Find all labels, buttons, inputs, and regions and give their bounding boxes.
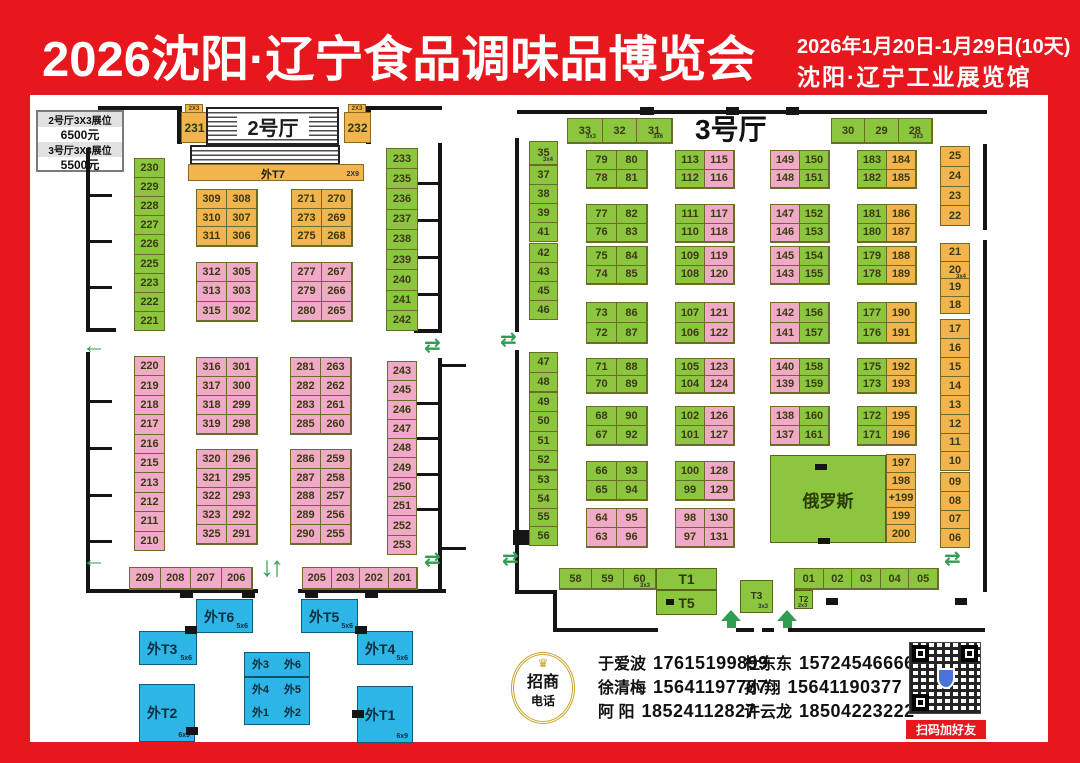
booth-54[interactable]: 54 bbox=[529, 489, 558, 509]
booth-286[interactable]: 286 bbox=[290, 449, 321, 469]
booth-116[interactable]: 116 bbox=[704, 169, 734, 189]
booth-90[interactable]: 90 bbox=[616, 406, 647, 426]
hall3-booth-block: 149150148151 bbox=[770, 150, 830, 189]
booth-200[interactable]: 200 bbox=[886, 524, 916, 543]
booth-262[interactable]: 262 bbox=[320, 376, 351, 396]
booth-russia[interactable]: 俄罗斯 bbox=[770, 455, 886, 543]
booth-256[interactable]: 256 bbox=[320, 505, 351, 525]
booth-122[interactable]: 122 bbox=[704, 322, 734, 343]
booth-92[interactable]: 92 bbox=[616, 425, 647, 445]
booth-282[interactable]: 282 bbox=[290, 376, 321, 396]
booth-308[interactable]: 308 bbox=[226, 189, 257, 209]
booth-177[interactable]: 177 bbox=[857, 302, 887, 323]
booth-141[interactable]: 141 bbox=[770, 322, 800, 343]
booth-86[interactable]: 86 bbox=[616, 302, 647, 323]
arrow-leftright-icon: ⇄ bbox=[424, 336, 441, 356]
booth-321[interactable]: 321 bbox=[196, 468, 227, 488]
booth-33[interactable]: 33 bbox=[567, 118, 603, 143]
booth-32[interactable]: 32 bbox=[602, 118, 638, 143]
booth-273[interactable]: 273 bbox=[291, 208, 322, 228]
booth-295[interactable]: 295 bbox=[226, 468, 257, 488]
booth-266[interactable]: 266 bbox=[321, 281, 352, 301]
booth-94[interactable]: 94 bbox=[616, 480, 647, 500]
booth-外2[interactable]: 外2 bbox=[276, 700, 309, 724]
booth-130[interactable]: 130 bbox=[704, 508, 734, 528]
booth-09[interactable]: 09 bbox=[940, 472, 970, 492]
booth-67[interactable]: 67 bbox=[586, 425, 617, 445]
booth-227[interactable]: 227 bbox=[134, 215, 165, 235]
booth-119[interactable]: 119 bbox=[704, 246, 734, 266]
booth-263[interactable]: 263 bbox=[320, 357, 351, 377]
booth-55[interactable]: 55 bbox=[529, 508, 558, 528]
booth-323[interactable]: 323 bbox=[196, 505, 227, 525]
outdoor-booth-wt3[interactable]: 外T3 5x6 bbox=[139, 631, 197, 665]
booth-252[interactable]: 252 bbox=[387, 515, 417, 535]
contact-row: 阿 阳18524112827 bbox=[598, 698, 756, 722]
booth-155[interactable]: 155 bbox=[799, 265, 829, 285]
door-marker bbox=[355, 626, 367, 634]
booth-260[interactable]: 260 bbox=[320, 414, 351, 434]
booth-50[interactable]: 50 bbox=[529, 411, 558, 431]
booth-161[interactable]: 161 bbox=[799, 425, 829, 445]
booth-72[interactable]: 72 bbox=[586, 322, 617, 343]
booth-68[interactable]: 68 bbox=[586, 406, 617, 426]
booth-195[interactable]: 195 bbox=[886, 406, 916, 426]
booth-07[interactable]: 07 bbox=[940, 510, 970, 530]
booth-267[interactable]: 267 bbox=[321, 262, 352, 282]
booth-03[interactable]: 03 bbox=[851, 568, 881, 589]
booth-223[interactable]: 223 bbox=[134, 273, 165, 293]
booth-110[interactable]: 110 bbox=[675, 223, 705, 243]
booth-228[interactable]: 228 bbox=[134, 196, 165, 216]
booth-117[interactable]: 117 bbox=[704, 204, 734, 224]
booth-293[interactable]: 293 bbox=[226, 487, 257, 507]
booth-10[interactable]: 10 bbox=[940, 451, 970, 471]
booth-129[interactable]: 129 bbox=[704, 480, 734, 500]
booth-193[interactable]: 193 bbox=[886, 375, 916, 393]
booth-154[interactable]: 154 bbox=[799, 246, 829, 266]
booth-149[interactable]: 149 bbox=[770, 150, 800, 170]
booth-189[interactable]: 189 bbox=[886, 265, 916, 285]
booth-75[interactable]: 75 bbox=[586, 246, 617, 266]
booth-268[interactable]: 268 bbox=[321, 226, 352, 246]
booth-208[interactable]: 208 bbox=[160, 567, 192, 589]
booth-17[interactable]: 17 bbox=[940, 319, 970, 339]
booth-179[interactable]: 179 bbox=[857, 246, 887, 266]
booth-231[interactable]: 231 bbox=[181, 112, 208, 143]
booth-101[interactable]: 101 bbox=[675, 425, 705, 445]
booth-99[interactable]: 99 bbox=[675, 480, 705, 500]
booth-18[interactable]: 18 bbox=[940, 296, 970, 315]
booth-232[interactable]: 232 bbox=[344, 112, 371, 143]
booth-142[interactable]: 142 bbox=[770, 302, 800, 323]
booth-108[interactable]: 108 bbox=[675, 265, 705, 285]
booth-322[interactable]: 322 bbox=[196, 487, 227, 507]
booth-43[interactable]: 43 bbox=[529, 262, 558, 282]
booth-111[interactable]: 111 bbox=[675, 204, 705, 224]
booth-222[interactable]: 222 bbox=[134, 292, 165, 312]
booth-77[interactable]: 77 bbox=[586, 204, 617, 224]
outdoor-booth-wt6[interactable]: 外T6 5x6 bbox=[196, 599, 253, 633]
booth-305[interactable]: 305 bbox=[226, 262, 257, 282]
booth-81[interactable]: 81 bbox=[616, 169, 647, 189]
booth-100[interactable]: 100 bbox=[675, 461, 705, 481]
booth-311[interactable]: 311 bbox=[196, 226, 227, 246]
booth-65[interactable]: 65 bbox=[586, 480, 617, 500]
booth-158[interactable]: 158 bbox=[799, 358, 829, 376]
wall-tick bbox=[86, 400, 112, 403]
booth-46[interactable]: 46 bbox=[529, 300, 558, 320]
booth-209[interactable]: 209 bbox=[129, 567, 161, 589]
booth-188[interactable]: 188 bbox=[886, 246, 916, 266]
booth-05[interactable]: 05 bbox=[908, 568, 938, 589]
booth-173[interactable]: 173 bbox=[857, 375, 887, 393]
booth-128[interactable]: 128 bbox=[704, 461, 734, 481]
booth-318[interactable]: 318 bbox=[196, 395, 227, 415]
booth-201[interactable]: 201 bbox=[388, 567, 418, 589]
booth-124[interactable]: 124 bbox=[704, 375, 734, 393]
booth-96[interactable]: 96 bbox=[616, 527, 647, 547]
booth-283[interactable]: 283 bbox=[290, 395, 321, 415]
booth-66[interactable]: 66 bbox=[586, 461, 617, 481]
booth-216[interactable]: 216 bbox=[134, 434, 165, 454]
booth-152[interactable]: 152 bbox=[799, 204, 829, 224]
booth-185[interactable]: 185 bbox=[886, 169, 916, 189]
booth-230[interactable]: 230 bbox=[134, 158, 165, 178]
booth-219[interactable]: 219 bbox=[134, 375, 165, 395]
booth-265[interactable]: 265 bbox=[321, 301, 352, 321]
booth-301[interactable]: 301 bbox=[226, 357, 257, 377]
booth-215[interactable]: 215 bbox=[134, 453, 165, 473]
booth-08[interactable]: 08 bbox=[940, 491, 970, 511]
booth-233[interactable]: 233 bbox=[386, 148, 418, 169]
booth-151[interactable]: 151 bbox=[799, 169, 829, 189]
booth-176[interactable]: 176 bbox=[857, 322, 887, 343]
booth-19[interactable]: 19 bbox=[940, 278, 970, 297]
booth-95[interactable]: 95 bbox=[616, 508, 647, 528]
booth-13[interactable]: 13 bbox=[940, 395, 970, 415]
booth-47[interactable]: 47 bbox=[529, 352, 558, 373]
booth-56[interactable]: 56 bbox=[529, 526, 558, 546]
booth-02[interactable]: 02 bbox=[823, 568, 853, 589]
booth-98[interactable]: 98 bbox=[675, 508, 705, 528]
booth-207[interactable]: 207 bbox=[190, 567, 222, 589]
booth-87[interactable]: 87 bbox=[616, 322, 647, 343]
booth-97[interactable]: 97 bbox=[675, 527, 705, 547]
wall bbox=[98, 106, 177, 110]
booth-15[interactable]: 15 bbox=[940, 357, 970, 377]
booth-84[interactable]: 84 bbox=[616, 246, 647, 266]
booth-197[interactable]: 197 bbox=[886, 454, 916, 473]
booth-06[interactable]: 06 bbox=[940, 528, 970, 548]
booth-14[interactable]: 14 bbox=[940, 376, 970, 396]
booth-290[interactable]: 290 bbox=[290, 524, 321, 544]
booth-t1[interactable]: T1 bbox=[656, 568, 717, 590]
booth-298[interactable]: 298 bbox=[226, 414, 257, 434]
booth-64[interactable]: 64 bbox=[586, 508, 617, 528]
booth-120[interactable]: 120 bbox=[704, 265, 734, 285]
booth-52[interactable]: 52 bbox=[529, 450, 558, 470]
booth-241[interactable]: 241 bbox=[386, 290, 418, 311]
booth-180[interactable]: 180 bbox=[857, 223, 887, 243]
booth-210[interactable]: 210 bbox=[134, 531, 165, 551]
booth-236[interactable]: 236 bbox=[386, 188, 418, 209]
booth-109[interactable]: 109 bbox=[675, 246, 705, 266]
booth-139[interactable]: 139 bbox=[770, 375, 800, 393]
booth-242[interactable]: 242 bbox=[386, 310, 418, 331]
booth-277[interactable]: 277 bbox=[291, 262, 322, 282]
booth-140[interactable]: 140 bbox=[770, 358, 800, 376]
booth-148[interactable]: 148 bbox=[770, 169, 800, 189]
booth-288[interactable]: 288 bbox=[290, 487, 321, 507]
booth-106[interactable]: 106 bbox=[675, 322, 705, 343]
booth-220[interactable]: 220 bbox=[134, 356, 165, 376]
booth-160[interactable]: 160 bbox=[799, 406, 829, 426]
outdoor-booth-wt4[interactable]: 外T4 5x6 bbox=[357, 631, 413, 665]
booth-259[interactable]: 259 bbox=[320, 449, 351, 469]
outdoor-booth-label: 外T1 bbox=[365, 705, 395, 725]
booth-131[interactable]: 131 bbox=[704, 527, 734, 547]
booth-126[interactable]: 126 bbox=[704, 406, 734, 426]
booth-248[interactable]: 248 bbox=[387, 438, 417, 458]
wall bbox=[553, 628, 658, 632]
booth-41[interactable]: 41 bbox=[529, 222, 558, 242]
booth-316[interactable]: 316 bbox=[196, 357, 227, 377]
booth-243[interactable]: 243 bbox=[387, 361, 417, 381]
booth-80[interactable]: 80 bbox=[616, 150, 647, 170]
booth-296[interactable]: 296 bbox=[226, 449, 257, 469]
booth-outer-t7[interactable]: 外T7 2X9 bbox=[188, 164, 364, 181]
booth-143[interactable]: 143 bbox=[770, 265, 800, 285]
booth-182[interactable]: 182 bbox=[857, 169, 887, 189]
booth-240[interactable]: 240 bbox=[386, 269, 418, 290]
booth-317[interactable]: 317 bbox=[196, 376, 227, 396]
booth-325[interactable]: 325 bbox=[196, 524, 227, 544]
booth-303[interactable]: 303 bbox=[226, 281, 257, 301]
booth-253[interactable]: 253 bbox=[387, 535, 417, 555]
door-marker bbox=[826, 598, 838, 605]
booth-269[interactable]: 269 bbox=[321, 208, 352, 228]
booth-289[interactable]: 289 bbox=[290, 505, 321, 525]
booth-145[interactable]: 145 bbox=[770, 246, 800, 266]
booth-184[interactable]: 184 bbox=[886, 150, 916, 170]
booth-22[interactable]: 22 bbox=[940, 205, 970, 226]
booth-217[interactable]: 217 bbox=[134, 414, 165, 434]
booth-45[interactable]: 45 bbox=[529, 281, 558, 301]
booth-51[interactable]: 51 bbox=[529, 431, 558, 451]
booth-258[interactable]: 258 bbox=[320, 468, 351, 488]
booth-159[interactable]: 159 bbox=[799, 375, 829, 393]
outdoor-booth-wt5[interactable]: 外T5 5x6 bbox=[301, 599, 358, 633]
booth-229[interactable]: 229 bbox=[134, 177, 165, 197]
booth-315[interactable]: 315 bbox=[196, 301, 227, 321]
booth-281[interactable]: 281 bbox=[290, 357, 321, 377]
qr-code[interactable] bbox=[909, 642, 981, 714]
booth-250[interactable]: 250 bbox=[387, 477, 417, 497]
outdoor-booth-wt1[interactable]: 外T1 6x9 bbox=[357, 686, 413, 743]
booth-123[interactable]: 123 bbox=[704, 358, 734, 376]
booth-04[interactable]: 04 bbox=[880, 568, 910, 589]
booth-319[interactable]: 319 bbox=[196, 414, 227, 434]
booth-245[interactable]: 245 bbox=[387, 380, 417, 400]
booth-147[interactable]: 147 bbox=[770, 204, 800, 224]
booth-238[interactable]: 238 bbox=[386, 229, 418, 250]
booth-82[interactable]: 82 bbox=[616, 204, 647, 224]
booth-299[interactable]: 299 bbox=[226, 395, 257, 415]
booth-218[interactable]: 218 bbox=[134, 395, 165, 415]
booth-11[interactable]: 11 bbox=[940, 433, 970, 453]
booth-280[interactable]: 280 bbox=[291, 301, 322, 321]
booth-外5[interactable]: 外5 bbox=[276, 677, 309, 701]
booth-270[interactable]: 270 bbox=[321, 189, 352, 209]
booth-199[interactable]: 199 bbox=[886, 507, 916, 526]
booth-313[interactable]: 313 bbox=[196, 281, 227, 301]
booth-235[interactable]: 235 bbox=[386, 168, 418, 189]
booth-172[interactable]: 172 bbox=[857, 406, 887, 426]
booth-198[interactable]: 198 bbox=[886, 472, 916, 491]
booth-83[interactable]: 83 bbox=[616, 223, 647, 243]
booth-63[interactable]: 63 bbox=[586, 527, 617, 547]
booth-76[interactable]: 76 bbox=[586, 223, 617, 243]
booth-287[interactable]: 287 bbox=[290, 468, 321, 488]
booth-206[interactable]: 206 bbox=[221, 567, 253, 589]
booth-312[interactable]: 312 bbox=[196, 262, 227, 282]
booth-79[interactable]: 79 bbox=[586, 150, 617, 170]
booth-48[interactable]: 48 bbox=[529, 372, 558, 393]
booth-外3[interactable]: 外3 bbox=[244, 652, 277, 676]
door-marker bbox=[666, 599, 674, 605]
booth-118[interactable]: 118 bbox=[704, 223, 734, 243]
booth-150[interactable]: 150 bbox=[799, 150, 829, 170]
booth-171[interactable]: 171 bbox=[857, 425, 887, 445]
booth-37[interactable]: 37 bbox=[529, 165, 558, 185]
booth-23[interactable]: 23 bbox=[940, 186, 970, 207]
booth-105[interactable]: 105 bbox=[675, 358, 705, 376]
booth-183[interactable]: 183 bbox=[857, 150, 887, 170]
booth-39[interactable]: 39 bbox=[529, 203, 558, 223]
booth-88[interactable]: 88 bbox=[616, 358, 647, 376]
booth-181[interactable]: 181 bbox=[857, 204, 887, 224]
booth-21[interactable]: 21 bbox=[940, 243, 970, 262]
booth-157[interactable]: 157 bbox=[799, 322, 829, 343]
booth-300[interactable]: 300 bbox=[226, 376, 257, 396]
booth-102[interactable]: 102 bbox=[675, 406, 705, 426]
booth-246[interactable]: 246 bbox=[387, 400, 417, 420]
booth-42[interactable]: 42 bbox=[529, 243, 558, 263]
booth-53[interactable]: 53 bbox=[529, 470, 558, 490]
booth-237[interactable]: 237 bbox=[386, 209, 418, 230]
booth-306[interactable]: 306 bbox=[226, 226, 257, 246]
booth-202[interactable]: 202 bbox=[359, 567, 389, 589]
booth-16[interactable]: 16 bbox=[940, 338, 970, 358]
booth-121[interactable]: 121 bbox=[704, 302, 734, 323]
booth-外6[interactable]: 外6 bbox=[276, 652, 309, 676]
booth-85[interactable]: 85 bbox=[616, 265, 647, 285]
booth-271[interactable]: 271 bbox=[291, 189, 322, 209]
booth-58[interactable]: 58 bbox=[559, 568, 592, 589]
booth-191[interactable]: 191 bbox=[886, 322, 916, 343]
booth-外4[interactable]: 外4 bbox=[244, 677, 277, 701]
booth-89[interactable]: 89 bbox=[616, 375, 647, 393]
booth-112[interactable]: 112 bbox=[675, 169, 705, 189]
booth-251[interactable]: 251 bbox=[387, 496, 417, 516]
booth-192[interactable]: 192 bbox=[886, 358, 916, 376]
booth-291[interactable]: 291 bbox=[226, 524, 257, 544]
booth-190[interactable]: 190 bbox=[886, 302, 916, 323]
booth-74[interactable]: 74 bbox=[586, 265, 617, 285]
booth-137[interactable]: 137 bbox=[770, 425, 800, 445]
booth-178[interactable]: 178 bbox=[857, 265, 887, 285]
booth-307[interactable]: 307 bbox=[226, 208, 257, 228]
booth-212[interactable]: 212 bbox=[134, 492, 165, 512]
booth-156[interactable]: 156 bbox=[799, 302, 829, 323]
booth-205[interactable]: 205 bbox=[302, 567, 332, 589]
booth-29[interactable]: 29 bbox=[864, 118, 898, 143]
booth-302[interactable]: 302 bbox=[226, 301, 257, 321]
booth-12[interactable]: 12 bbox=[940, 414, 970, 434]
booth-292[interactable]: 292 bbox=[226, 505, 257, 525]
booth-115[interactable]: 115 bbox=[704, 150, 734, 170]
booth-249[interactable]: 249 bbox=[387, 457, 417, 477]
booth-186[interactable]: 186 bbox=[886, 204, 916, 224]
booth-239[interactable]: 239 bbox=[386, 249, 418, 270]
booth-104[interactable]: 104 bbox=[675, 375, 705, 393]
booth-261[interactable]: 261 bbox=[320, 395, 351, 415]
booth-175[interactable]: 175 bbox=[857, 358, 887, 376]
booth-187[interactable]: 187 bbox=[886, 223, 916, 243]
booth-外1[interactable]: 外1 bbox=[244, 700, 277, 724]
booth-71[interactable]: 71 bbox=[586, 358, 617, 376]
booth-78[interactable]: 78 bbox=[586, 169, 617, 189]
booth-01[interactable]: 01 bbox=[794, 568, 824, 589]
booth-225[interactable]: 225 bbox=[134, 254, 165, 274]
booth-138[interactable]: 138 bbox=[770, 406, 800, 426]
booth-153[interactable]: 153 bbox=[799, 223, 829, 243]
booth-24[interactable]: 24 bbox=[940, 166, 970, 187]
booth-70[interactable]: 70 bbox=[586, 375, 617, 393]
booth-38[interactable]: 38 bbox=[529, 184, 558, 204]
booth-285[interactable]: 285 bbox=[290, 414, 321, 434]
booth-310[interactable]: 310 bbox=[196, 208, 227, 228]
booth-255[interactable]: 255 bbox=[320, 524, 351, 544]
booth-127[interactable]: 127 bbox=[704, 425, 734, 445]
booth-320[interactable]: 320 bbox=[196, 449, 227, 469]
booth-247[interactable]: 247 bbox=[387, 419, 417, 439]
booth-309[interactable]: 309 bbox=[196, 189, 227, 209]
booth-107[interactable]: 107 bbox=[675, 302, 705, 323]
booth-196[interactable]: 196 bbox=[886, 425, 916, 445]
booth-25[interactable]: 25 bbox=[940, 146, 970, 167]
booth-t3[interactable]: T3 bbox=[740, 580, 773, 613]
booth-49[interactable]: 49 bbox=[529, 392, 558, 412]
booth-146[interactable]: 146 bbox=[770, 223, 800, 243]
booth-30[interactable]: 30 bbox=[831, 118, 865, 143]
booth-+199[interactable]: +199 bbox=[886, 489, 916, 508]
booth-221[interactable]: 221 bbox=[134, 311, 165, 331]
booth-279[interactable]: 279 bbox=[291, 281, 322, 301]
booth-59[interactable]: 59 bbox=[591, 568, 624, 589]
booth-257[interactable]: 257 bbox=[320, 487, 351, 507]
booth-93[interactable]: 93 bbox=[616, 461, 647, 481]
hall2-right-column-bottom: 243245246247248249250251252253 bbox=[387, 362, 417, 555]
booth-213[interactable]: 213 bbox=[134, 472, 165, 492]
booth-275[interactable]: 275 bbox=[291, 226, 322, 246]
booth-211[interactable]: 211 bbox=[134, 511, 165, 531]
booth-226[interactable]: 226 bbox=[134, 234, 165, 254]
booth-203[interactable]: 203 bbox=[331, 567, 361, 589]
booth-73[interactable]: 73 bbox=[586, 302, 617, 323]
booth-113[interactable]: 113 bbox=[675, 150, 705, 170]
